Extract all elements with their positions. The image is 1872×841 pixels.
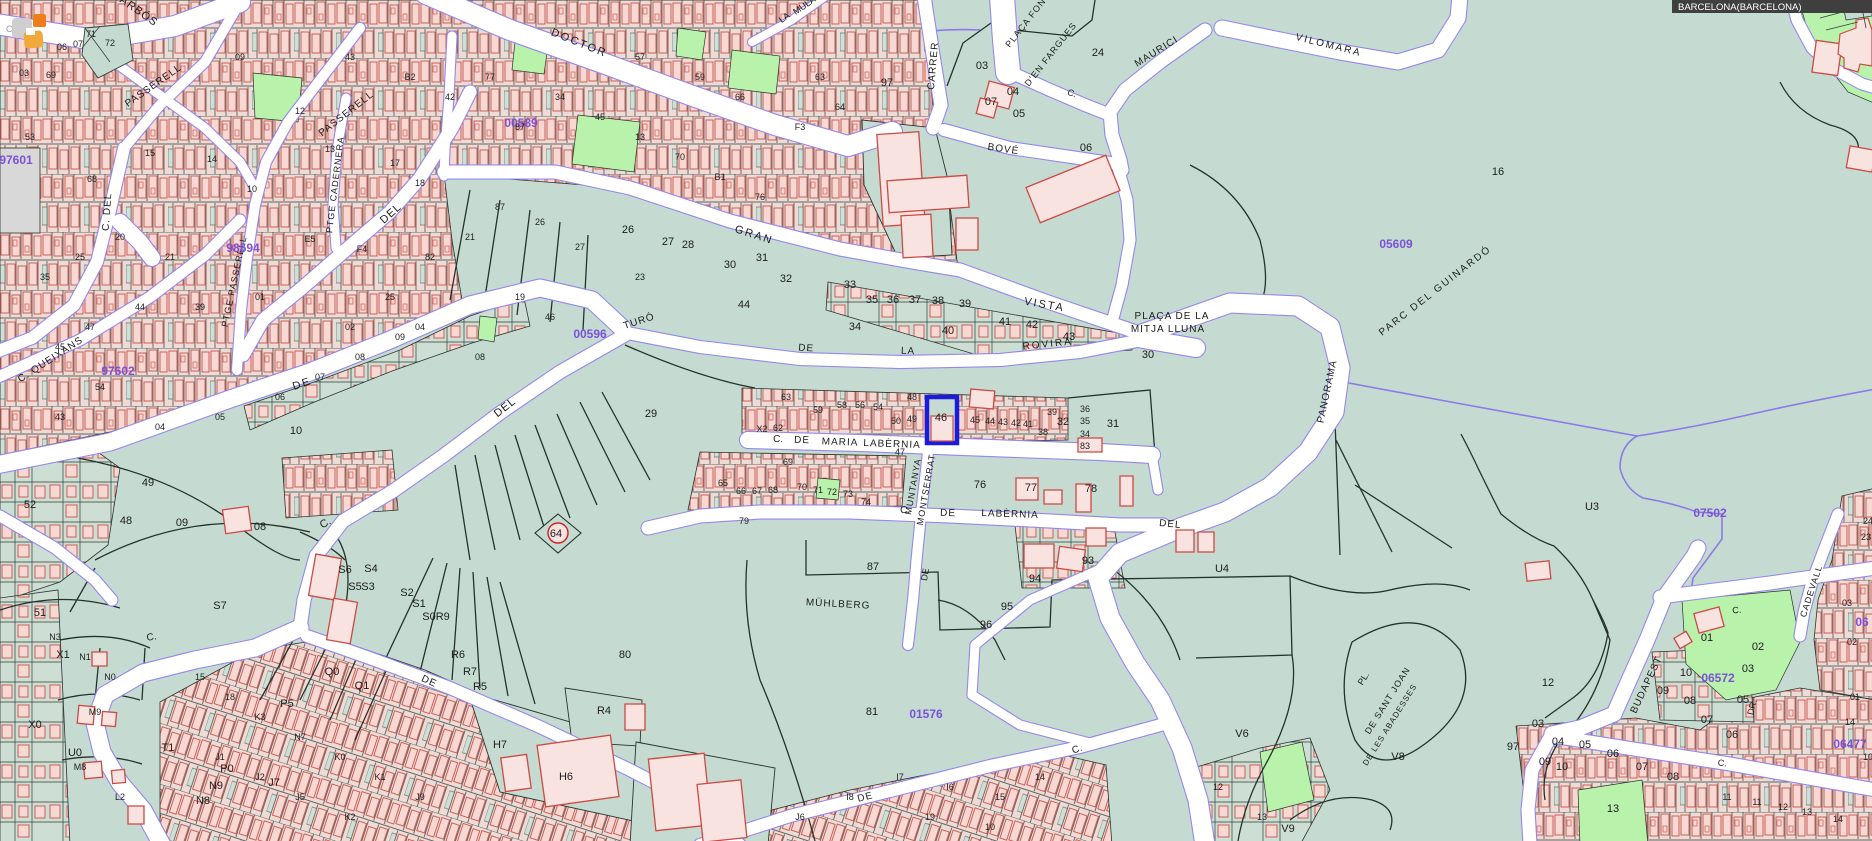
svg-text:06: 06: [1607, 748, 1619, 760]
svg-text:07502: 07502: [1693, 506, 1727, 520]
svg-text:35: 35: [866, 294, 878, 306]
svg-text:43: 43: [1063, 331, 1075, 343]
svg-text:57: 57: [635, 52, 645, 62]
svg-text:39: 39: [959, 298, 971, 310]
svg-text:65: 65: [718, 478, 728, 488]
svg-text:S4: S4: [364, 563, 377, 575]
svg-text:10: 10: [1556, 761, 1568, 773]
svg-text:15: 15: [995, 792, 1005, 802]
svg-text:00596: 00596: [573, 327, 607, 341]
svg-text:N1: N1: [79, 652, 91, 662]
svg-text:X1: X1: [56, 649, 69, 661]
svg-text:87: 87: [495, 202, 505, 212]
svg-text:07: 07: [73, 39, 83, 49]
svg-text:T1: T1: [162, 742, 175, 754]
svg-text:03: 03: [1742, 663, 1754, 675]
svg-text:27: 27: [575, 242, 585, 252]
svg-text:34: 34: [849, 321, 861, 333]
svg-text:J2: J2: [255, 772, 265, 782]
svg-text:12: 12: [1778, 802, 1788, 812]
svg-text:N9: N9: [209, 780, 223, 792]
svg-text:27: 27: [662, 236, 674, 248]
svg-text:02: 02: [345, 322, 355, 332]
svg-text:45: 45: [970, 415, 980, 425]
svg-text:N7: N7: [294, 732, 306, 742]
svg-text:09: 09: [395, 332, 405, 342]
svg-text:04: 04: [155, 422, 165, 432]
svg-text:Q0: Q0: [325, 666, 340, 678]
svg-text:26: 26: [535, 217, 545, 227]
svg-text:67: 67: [752, 486, 762, 496]
svg-text:63: 63: [781, 392, 791, 402]
svg-text:38: 38: [1038, 427, 1048, 437]
svg-text:S5: S5: [348, 581, 361, 593]
svg-text:44: 44: [135, 302, 145, 312]
svg-text:73: 73: [843, 489, 853, 499]
svg-text:09: 09: [176, 517, 188, 529]
svg-text:93: 93: [1082, 555, 1094, 567]
svg-text:14: 14: [1035, 772, 1045, 782]
svg-text:44: 44: [985, 416, 995, 426]
svg-text:87: 87: [515, 122, 525, 132]
svg-text:21: 21: [465, 232, 475, 242]
svg-text:42: 42: [1011, 418, 1021, 428]
svg-text:96: 96: [980, 619, 992, 631]
svg-text:20: 20: [115, 232, 125, 242]
svg-text:K3: K3: [254, 712, 265, 722]
svg-text:21: 21: [165, 252, 175, 262]
svg-text:06: 06: [1080, 142, 1092, 154]
svg-text:41: 41: [1023, 419, 1033, 429]
svg-text:14: 14: [1845, 717, 1855, 727]
svg-text:48: 48: [907, 392, 917, 402]
svg-text:13: 13: [1802, 807, 1812, 817]
svg-text:06: 06: [1855, 615, 1869, 629]
svg-text:15: 15: [195, 672, 205, 682]
svg-text:06477: 06477: [1833, 737, 1867, 751]
svg-text:S0R9: S0R9: [422, 611, 450, 623]
svg-text:42: 42: [445, 92, 455, 102]
svg-text:DE: DE: [919, 567, 931, 581]
svg-text:45: 45: [55, 342, 65, 352]
svg-text:06: 06: [57, 42, 67, 52]
svg-text:03: 03: [976, 60, 988, 72]
svg-text:10: 10: [1680, 667, 1692, 679]
svg-text:05: 05: [215, 412, 225, 422]
svg-text:66: 66: [736, 486, 746, 496]
svg-text:97601: 97601: [0, 153, 33, 167]
svg-text:72: 72: [827, 487, 837, 497]
svg-text:63: 63: [815, 72, 825, 82]
svg-text:K1: K1: [374, 772, 385, 782]
svg-text:35: 35: [1080, 416, 1090, 426]
svg-text:07: 07: [1636, 761, 1648, 773]
svg-text:08: 08: [254, 521, 266, 533]
svg-text:68: 68: [87, 174, 97, 184]
svg-text:94: 94: [1029, 573, 1041, 585]
svg-text:10: 10: [290, 425, 302, 437]
svg-text:49: 49: [142, 477, 154, 489]
svg-text:06: 06: [275, 392, 285, 402]
svg-text:43: 43: [998, 417, 1008, 427]
svg-text:13: 13: [1607, 803, 1619, 815]
svg-text:77: 77: [485, 72, 495, 82]
svg-text:I7: I7: [896, 772, 904, 782]
svg-text:08: 08: [1667, 771, 1679, 783]
svg-text:72: 72: [105, 38, 115, 48]
svg-text:07: 07: [985, 96, 997, 108]
svg-text:36: 36: [1080, 404, 1090, 414]
svg-text:C.: C.: [146, 631, 158, 644]
svg-text:08: 08: [475, 352, 485, 362]
svg-text:R5: R5: [473, 681, 487, 693]
svg-text:05: 05: [1737, 694, 1749, 706]
svg-text:02: 02: [1847, 637, 1857, 647]
svg-text:32: 32: [1057, 416, 1069, 428]
svg-text:15: 15: [145, 148, 155, 158]
svg-text:DE: DE: [794, 435, 810, 447]
svg-text:F4: F4: [357, 244, 368, 254]
svg-text:18: 18: [415, 178, 425, 188]
svg-text:81: 81: [866, 706, 878, 718]
svg-text:N0: N0: [104, 672, 116, 682]
svg-text:06572: 06572: [1701, 671, 1735, 685]
svg-text:19: 19: [925, 812, 935, 822]
svg-text:23: 23: [1861, 532, 1871, 542]
svg-text:43: 43: [55, 412, 65, 422]
svg-text:70: 70: [675, 152, 685, 162]
svg-text:14: 14: [207, 154, 217, 164]
svg-text:62: 62: [773, 423, 783, 433]
svg-text:05: 05: [1013, 108, 1025, 120]
svg-text:13: 13: [1257, 812, 1267, 822]
svg-text:K0: K0: [334, 752, 345, 762]
svg-text:03: 03: [19, 68, 29, 78]
svg-text:38: 38: [932, 295, 944, 307]
svg-text:83: 83: [1080, 441, 1090, 451]
svg-text:56: 56: [855, 400, 865, 410]
svg-text:LA: LA: [901, 346, 916, 357]
svg-text:87: 87: [867, 561, 879, 573]
svg-text:10: 10: [985, 822, 995, 832]
svg-text:31: 31: [1107, 418, 1119, 430]
svg-text:05: 05: [1579, 739, 1591, 751]
svg-text:S1: S1: [412, 598, 425, 610]
svg-text:26: 26: [622, 224, 634, 236]
svg-text:52: 52: [24, 499, 36, 511]
svg-text:58: 58: [837, 400, 847, 410]
svg-text:79: 79: [739, 516, 749, 526]
svg-text:R7: R7: [463, 666, 477, 678]
svg-text:44: 44: [738, 299, 750, 311]
svg-text:76: 76: [974, 479, 986, 491]
svg-text:01576: 01576: [909, 707, 943, 721]
svg-text:29: 29: [645, 408, 657, 420]
svg-text:51: 51: [34, 607, 46, 619]
svg-text:X2: X2: [756, 424, 767, 434]
svg-text:H6: H6: [559, 771, 573, 783]
svg-text:59: 59: [695, 72, 705, 82]
svg-text:K2: K2: [344, 812, 355, 822]
svg-text:09: 09: [1657, 685, 1669, 697]
svg-text:J9: J9: [415, 792, 425, 802]
svg-text:PLAÇA DE LA: PLAÇA DE LA: [1135, 311, 1210, 322]
svg-text:24: 24: [1863, 516, 1872, 526]
svg-text:78: 78: [1085, 483, 1097, 495]
svg-text:08: 08: [1684, 695, 1696, 707]
svg-text:BARCELONA(BARCELONA): BARCELONA(BARCELONA): [1678, 2, 1802, 13]
svg-text:U4: U4: [1215, 563, 1229, 575]
svg-text:23: 23: [635, 272, 645, 282]
svg-text:07: 07: [1701, 714, 1713, 726]
svg-text:34: 34: [1080, 429, 1090, 439]
svg-text:31: 31: [756, 252, 768, 264]
svg-text:69: 69: [46, 70, 56, 80]
svg-text:28: 28: [682, 239, 694, 251]
svg-text:DE: DE: [798, 342, 815, 354]
svg-text:19: 19: [515, 292, 525, 302]
svg-text:36: 36: [887, 294, 899, 306]
svg-text:95: 95: [1001, 601, 1013, 613]
svg-text:97: 97: [1507, 741, 1519, 753]
svg-text:S3: S3: [361, 581, 374, 593]
svg-text:97: 97: [881, 77, 893, 89]
svg-text:B2: B2: [404, 72, 415, 82]
svg-text:45: 45: [595, 112, 605, 122]
svg-text:12: 12: [1542, 677, 1554, 689]
svg-text:05609: 05609: [1379, 237, 1413, 251]
svg-text:54: 54: [95, 382, 105, 392]
svg-text:48: 48: [120, 515, 132, 527]
svg-text:64: 64: [550, 528, 562, 540]
svg-text:16: 16: [1492, 166, 1504, 178]
svg-text:74: 74: [861, 497, 871, 507]
svg-text:47: 47: [895, 447, 905, 457]
svg-text:08: 08: [355, 352, 365, 362]
svg-text:N8: N8: [196, 795, 210, 807]
svg-text:L2: L2: [115, 792, 125, 802]
svg-text:49: 49: [907, 414, 917, 424]
svg-text:S6: S6: [338, 564, 351, 576]
svg-text:I8: I8: [846, 792, 854, 802]
svg-text:37: 37: [909, 294, 921, 306]
svg-text:S7: S7: [213, 600, 226, 612]
svg-text:N3: N3: [49, 632, 61, 642]
svg-text:39: 39: [1047, 407, 1057, 417]
svg-text:DEL: DEL: [1159, 518, 1182, 531]
svg-text:C.: C.: [900, 505, 910, 516]
svg-text:43: 43: [345, 52, 355, 62]
svg-text:I6: I6: [946, 782, 954, 792]
svg-text:71: 71: [813, 485, 823, 495]
svg-text:V9: V9: [1281, 823, 1294, 835]
svg-text:40: 40: [942, 325, 954, 337]
svg-text:M9: M9: [89, 707, 102, 717]
svg-text:J1: J1: [215, 752, 225, 762]
svg-text:04: 04: [1552, 736, 1564, 748]
svg-text:J6: J6: [795, 812, 805, 822]
svg-text:41: 41: [999, 316, 1011, 328]
svg-text:42: 42: [1026, 319, 1038, 331]
svg-text:V6: V6: [1235, 728, 1248, 740]
svg-text:30: 30: [1142, 349, 1154, 361]
svg-text:DE: DE: [940, 508, 956, 520]
svg-text:35: 35: [40, 272, 50, 282]
svg-text:03: 03: [1532, 718, 1544, 730]
svg-text:M8: M8: [74, 762, 87, 772]
svg-text:77: 77: [1025, 482, 1037, 494]
svg-text:47: 47: [85, 322, 95, 332]
svg-text:11: 11: [1722, 792, 1731, 802]
svg-text:U0: U0: [68, 747, 82, 759]
svg-text:03: 03: [1842, 598, 1852, 608]
svg-text:B1: B1: [714, 172, 725, 182]
svg-text:66: 66: [735, 92, 745, 102]
svg-text:53: 53: [25, 132, 35, 142]
svg-text:12: 12: [295, 106, 305, 116]
svg-text:98594: 98594: [226, 241, 260, 255]
svg-text:76: 76: [755, 192, 765, 202]
svg-text:09: 09: [235, 52, 245, 62]
svg-text:46: 46: [935, 412, 947, 424]
svg-text:50: 50: [891, 416, 901, 426]
svg-text:P0: P0: [220, 763, 233, 775]
svg-text:11: 11: [1752, 797, 1761, 807]
svg-text:82: 82: [425, 252, 435, 262]
svg-text:C.: C.: [773, 434, 783, 445]
svg-text:E5: E5: [304, 234, 315, 244]
svg-text:J7: J7: [268, 777, 280, 789]
svg-text:80: 80: [619, 649, 631, 661]
svg-text:34: 34: [555, 92, 565, 102]
svg-text:MARIA: MARIA: [822, 436, 859, 448]
svg-text:F3: F3: [795, 122, 806, 132]
svg-text:68: 68: [768, 485, 778, 495]
svg-text:V8: V8: [1391, 751, 1404, 763]
svg-text:59: 59: [813, 405, 823, 415]
svg-text:13: 13: [635, 132, 645, 142]
svg-text:Q1: Q1: [355, 680, 370, 692]
svg-text:54: 54: [873, 402, 883, 412]
svg-text:C.: C.: [1732, 605, 1742, 616]
svg-text:H7: H7: [493, 739, 507, 751]
svg-text:01: 01: [1850, 692, 1860, 702]
svg-text:10: 10: [1863, 752, 1872, 762]
svg-text:U3: U3: [1585, 501, 1599, 513]
svg-text:04: 04: [415, 322, 425, 332]
svg-text:C: C: [6, 24, 13, 34]
svg-text:06: 06: [1726, 729, 1738, 741]
svg-text:07: 07: [315, 372, 325, 382]
svg-text:70: 70: [797, 482, 807, 492]
svg-text:P5: P5: [280, 698, 293, 710]
svg-text:25: 25: [75, 252, 85, 262]
svg-text:25: 25: [385, 292, 395, 302]
svg-text:97602: 97602: [101, 364, 135, 378]
svg-text:02: 02: [1752, 641, 1764, 653]
svg-text:17: 17: [390, 158, 400, 168]
svg-text:MITJA LLUNA: MITJA LLUNA: [1131, 324, 1205, 335]
svg-text:R4: R4: [597, 705, 611, 717]
svg-text:01: 01: [255, 292, 265, 302]
svg-text:X0: X0: [28, 719, 41, 731]
svg-text:39: 39: [195, 302, 205, 312]
svg-text:04: 04: [1007, 86, 1019, 98]
svg-text:12: 12: [1213, 782, 1223, 792]
svg-text:24: 24: [1092, 47, 1104, 59]
svg-text:64: 64: [835, 102, 845, 112]
svg-text:13: 13: [325, 144, 335, 154]
svg-text:30: 30: [724, 259, 736, 271]
svg-text:71: 71: [86, 29, 96, 39]
svg-text:10: 10: [247, 184, 257, 194]
svg-text:J5: J5: [295, 792, 305, 802]
svg-text:C.: C.: [1717, 758, 1727, 769]
svg-text:14: 14: [1833, 814, 1843, 824]
svg-text:33: 33: [844, 279, 856, 291]
svg-text:18: 18: [225, 692, 235, 702]
svg-text:01: 01: [1701, 632, 1713, 644]
svg-text:46: 46: [545, 312, 555, 322]
svg-text:R6: R6: [451, 649, 465, 661]
svg-text:69: 69: [783, 457, 793, 467]
svg-text:09: 09: [1539, 756, 1551, 768]
svg-text:32: 32: [780, 273, 792, 285]
